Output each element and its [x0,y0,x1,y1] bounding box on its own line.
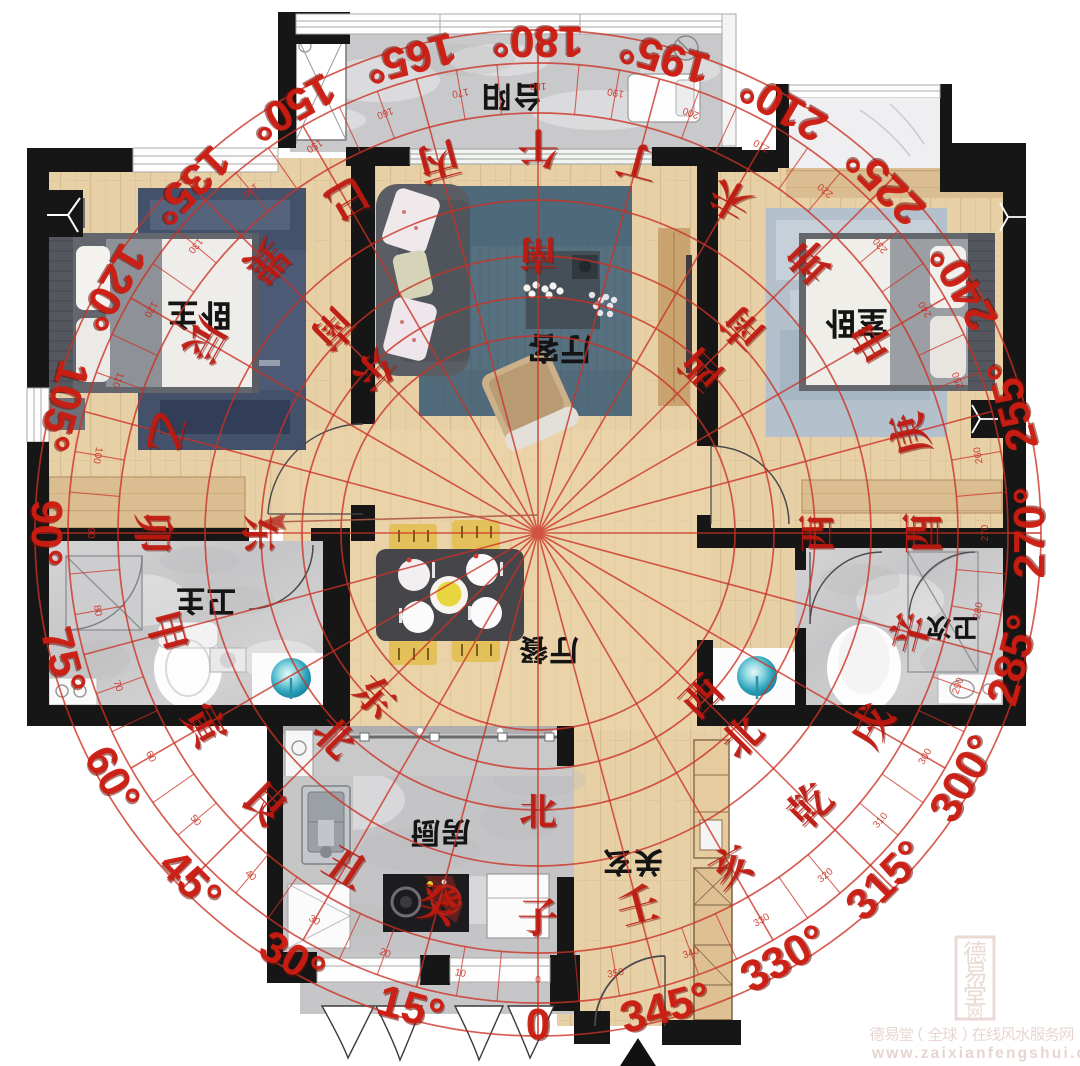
svg-text:www.zaixianfengshui.com: www.zaixianfengshui.com [871,1045,1080,1062]
svg-text:180: 180 [529,80,546,91]
svg-text:270: 270 [980,524,991,541]
svg-text:0: 0 [526,1000,550,1049]
svg-text:90°: 90° [22,500,71,567]
svg-text:0: 0 [535,975,541,986]
svg-text:180°: 180° [492,17,583,66]
svg-text:270°: 270° [1005,487,1054,578]
svg-text:90: 90 [85,527,96,539]
